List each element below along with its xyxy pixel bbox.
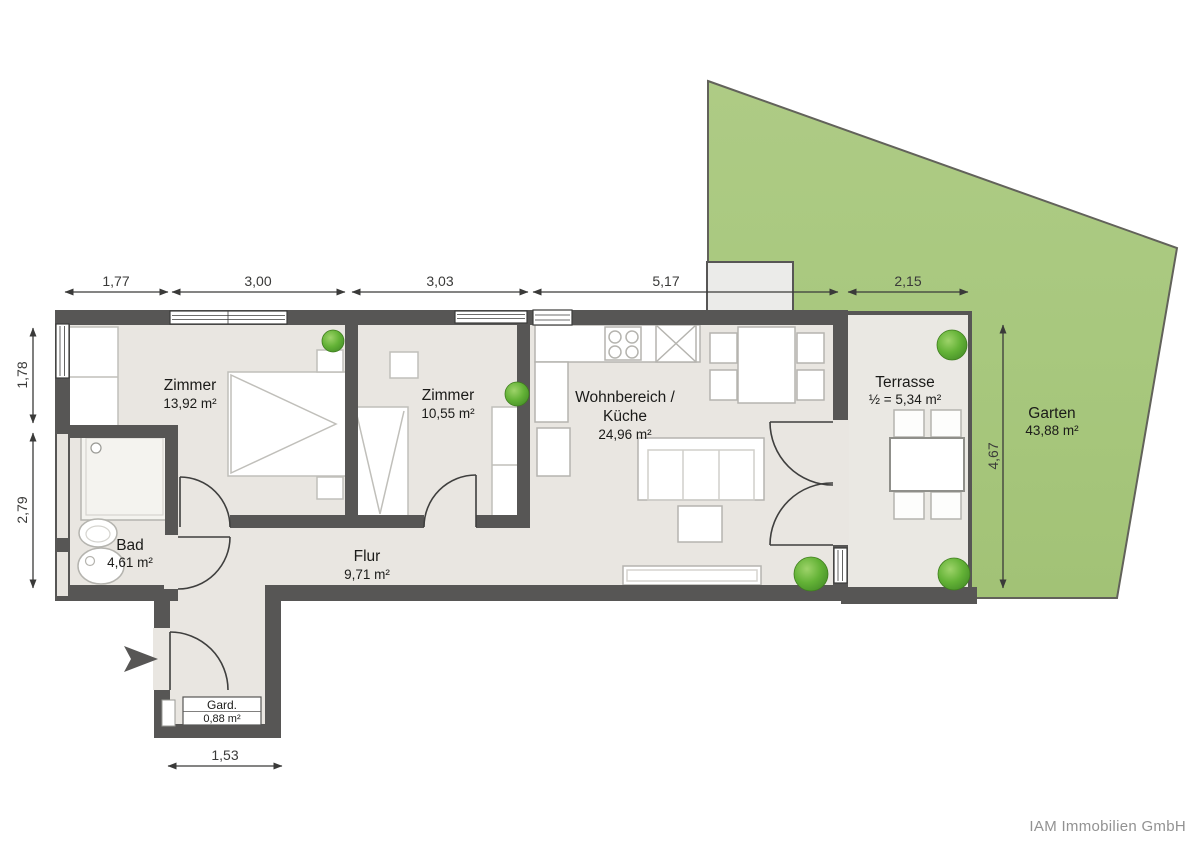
chair [894, 492, 924, 519]
coffee-table [678, 506, 722, 542]
toilet [79, 519, 117, 547]
fridge [537, 428, 570, 476]
dim-top-4: 5,17 [652, 273, 679, 289]
chair [931, 410, 961, 437]
room-area-flur: 9,71 m² [344, 567, 390, 582]
plant-icon [505, 382, 529, 406]
shower-drain [91, 443, 101, 453]
nightstand [317, 350, 343, 372]
dim-right-1: 4,67 [985, 442, 1001, 469]
room-label-zimmer1: Zimmer [164, 377, 217, 394]
window [834, 548, 847, 583]
entrance-arrow-icon [124, 646, 158, 672]
floor-plan-canvas: 1,77 3,00 3,03 5,17 2,15 1,78 2,79 4,67 … [0, 0, 1200, 848]
dim-left-2: 2,79 [14, 496, 30, 523]
chair [797, 370, 824, 400]
room-area-bad: 4,61 m² [107, 555, 153, 570]
room-label-bad: Bad [116, 537, 144, 554]
nightstand [317, 477, 343, 499]
bush-icon [938, 558, 970, 590]
frosted-window [57, 434, 68, 538]
floor-plan-page: 1,77 3,00 3,03 5,17 2,15 1,78 2,79 4,67 … [0, 0, 1200, 848]
room-area-garten: 43,88 m² [1025, 423, 1079, 438]
dim-top-2: 3,00 [244, 273, 271, 289]
room-label-zimmer2: Zimmer [422, 387, 475, 404]
desk [390, 352, 418, 378]
chair [710, 333, 737, 363]
room-area-garderobe: 0,88 m² [203, 713, 241, 725]
window [455, 311, 527, 323]
room-area-zimmer2: 10,55 m² [421, 406, 475, 421]
plant-icon [322, 330, 344, 352]
room-area-zimmer1: 13,92 m² [163, 396, 217, 411]
bush-icon [794, 557, 828, 591]
dim-left-1: 1,78 [14, 361, 30, 388]
room-label-wohnbereich: Wohnbereich / [575, 389, 675, 406]
room-area-terrasse: ½ = 5,34 m² [869, 392, 942, 407]
room-area-wohnbereich: 24,96 m² [598, 427, 652, 442]
room-label-terrasse: Terrasse [875, 374, 934, 391]
chair [710, 370, 737, 400]
room-label-flur: Flur [354, 548, 381, 565]
kitchen-unit [535, 362, 568, 422]
room-label-garten: Garten [1028, 405, 1075, 422]
window [533, 310, 572, 325]
single-bed [352, 407, 408, 522]
dim-top-3: 3,03 [426, 273, 453, 289]
room-label-kueche: Küche [603, 408, 647, 425]
terrace-table [890, 438, 964, 491]
window [170, 311, 287, 324]
chair [931, 492, 961, 519]
sofa [638, 438, 764, 500]
double-bed [228, 372, 346, 476]
garden-shed [707, 262, 793, 313]
frosted-window [57, 552, 68, 596]
chair [894, 410, 924, 437]
window [56, 324, 69, 378]
footer-company-name: IAM Immobilien GmbH [1029, 818, 1186, 835]
chair [797, 333, 824, 363]
room-label-garderobe: Gard. [207, 698, 237, 712]
dim-top-1: 1,77 [102, 273, 129, 289]
bush-icon [937, 330, 967, 360]
dining-table [738, 327, 795, 403]
dim-top-5: 2,15 [894, 273, 921, 289]
sideboard [623, 566, 761, 585]
dim-bottom-1: 1,53 [211, 747, 238, 763]
